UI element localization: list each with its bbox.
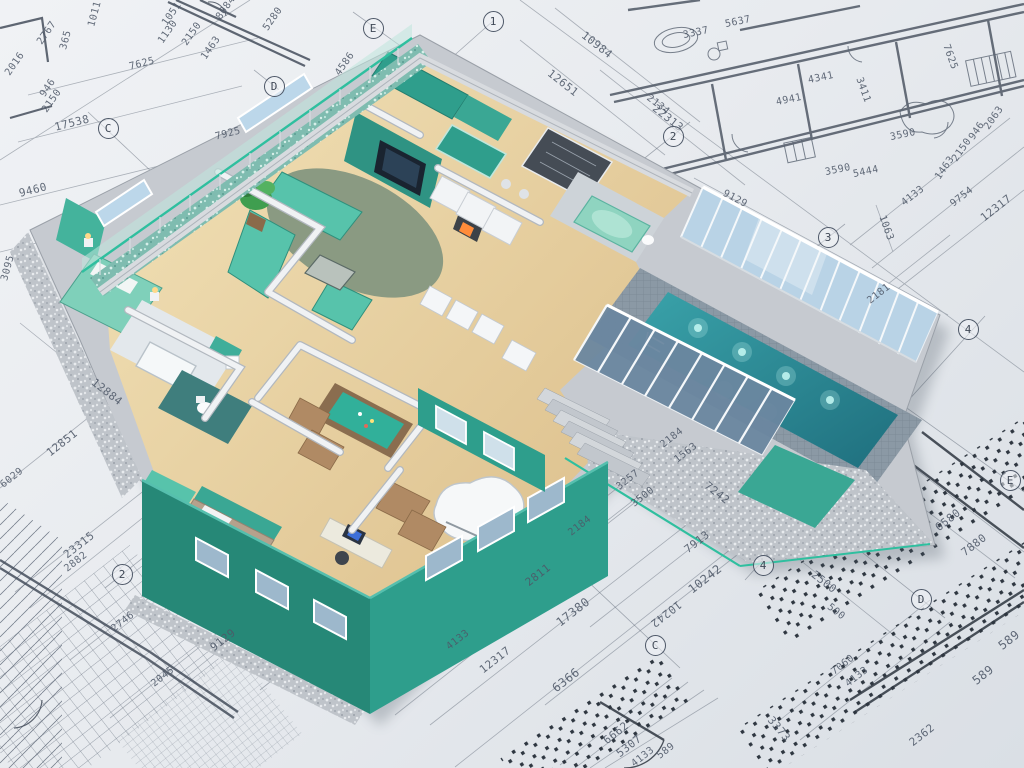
nightstand bbox=[150, 292, 159, 301]
floor-plan-top-right bbox=[610, 0, 1024, 178]
billiard-ball bbox=[370, 419, 374, 423]
bar-stool bbox=[501, 179, 511, 189]
bedside-lamp bbox=[85, 233, 91, 239]
nightstand bbox=[84, 238, 93, 247]
spa-toilet bbox=[642, 235, 654, 245]
billiard-ball bbox=[358, 412, 362, 416]
bar-stool bbox=[519, 189, 529, 199]
bedside-lamp bbox=[152, 287, 158, 293]
office-chair bbox=[335, 551, 349, 565]
architectural-render-scene: 1011276736520169462150762517538946079258… bbox=[0, 0, 1024, 768]
toilet-tank bbox=[196, 396, 205, 403]
billiard-ball bbox=[364, 424, 368, 428]
blueprint-canvas bbox=[0, 0, 1024, 768]
